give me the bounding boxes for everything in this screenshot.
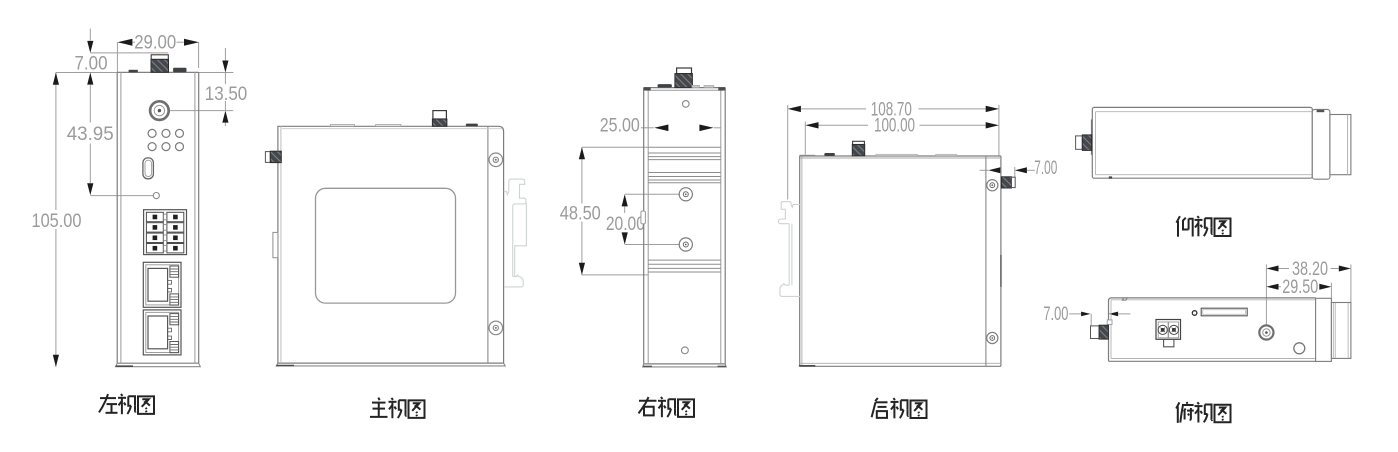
svg-text:100.00: 100.00 <box>874 116 915 137</box>
svg-text:48.50: 48.50 <box>560 204 601 225</box>
svg-text:7.00: 7.00 <box>1043 304 1068 325</box>
svg-text:7.00: 7.00 <box>75 54 108 75</box>
svg-text:105.00: 105.00 <box>32 211 82 232</box>
svg-text:29.00: 29.00 <box>134 32 176 53</box>
svg-text:7.00: 7.00 <box>1034 158 1057 179</box>
svg-text:29.50: 29.50 <box>1282 277 1318 298</box>
svg-text:25.00: 25.00 <box>600 116 640 137</box>
svg-text:43.95: 43.95 <box>67 124 114 145</box>
svg-text:20.00: 20.00 <box>606 214 645 235</box>
svg-text:13.50: 13.50 <box>205 84 248 105</box>
